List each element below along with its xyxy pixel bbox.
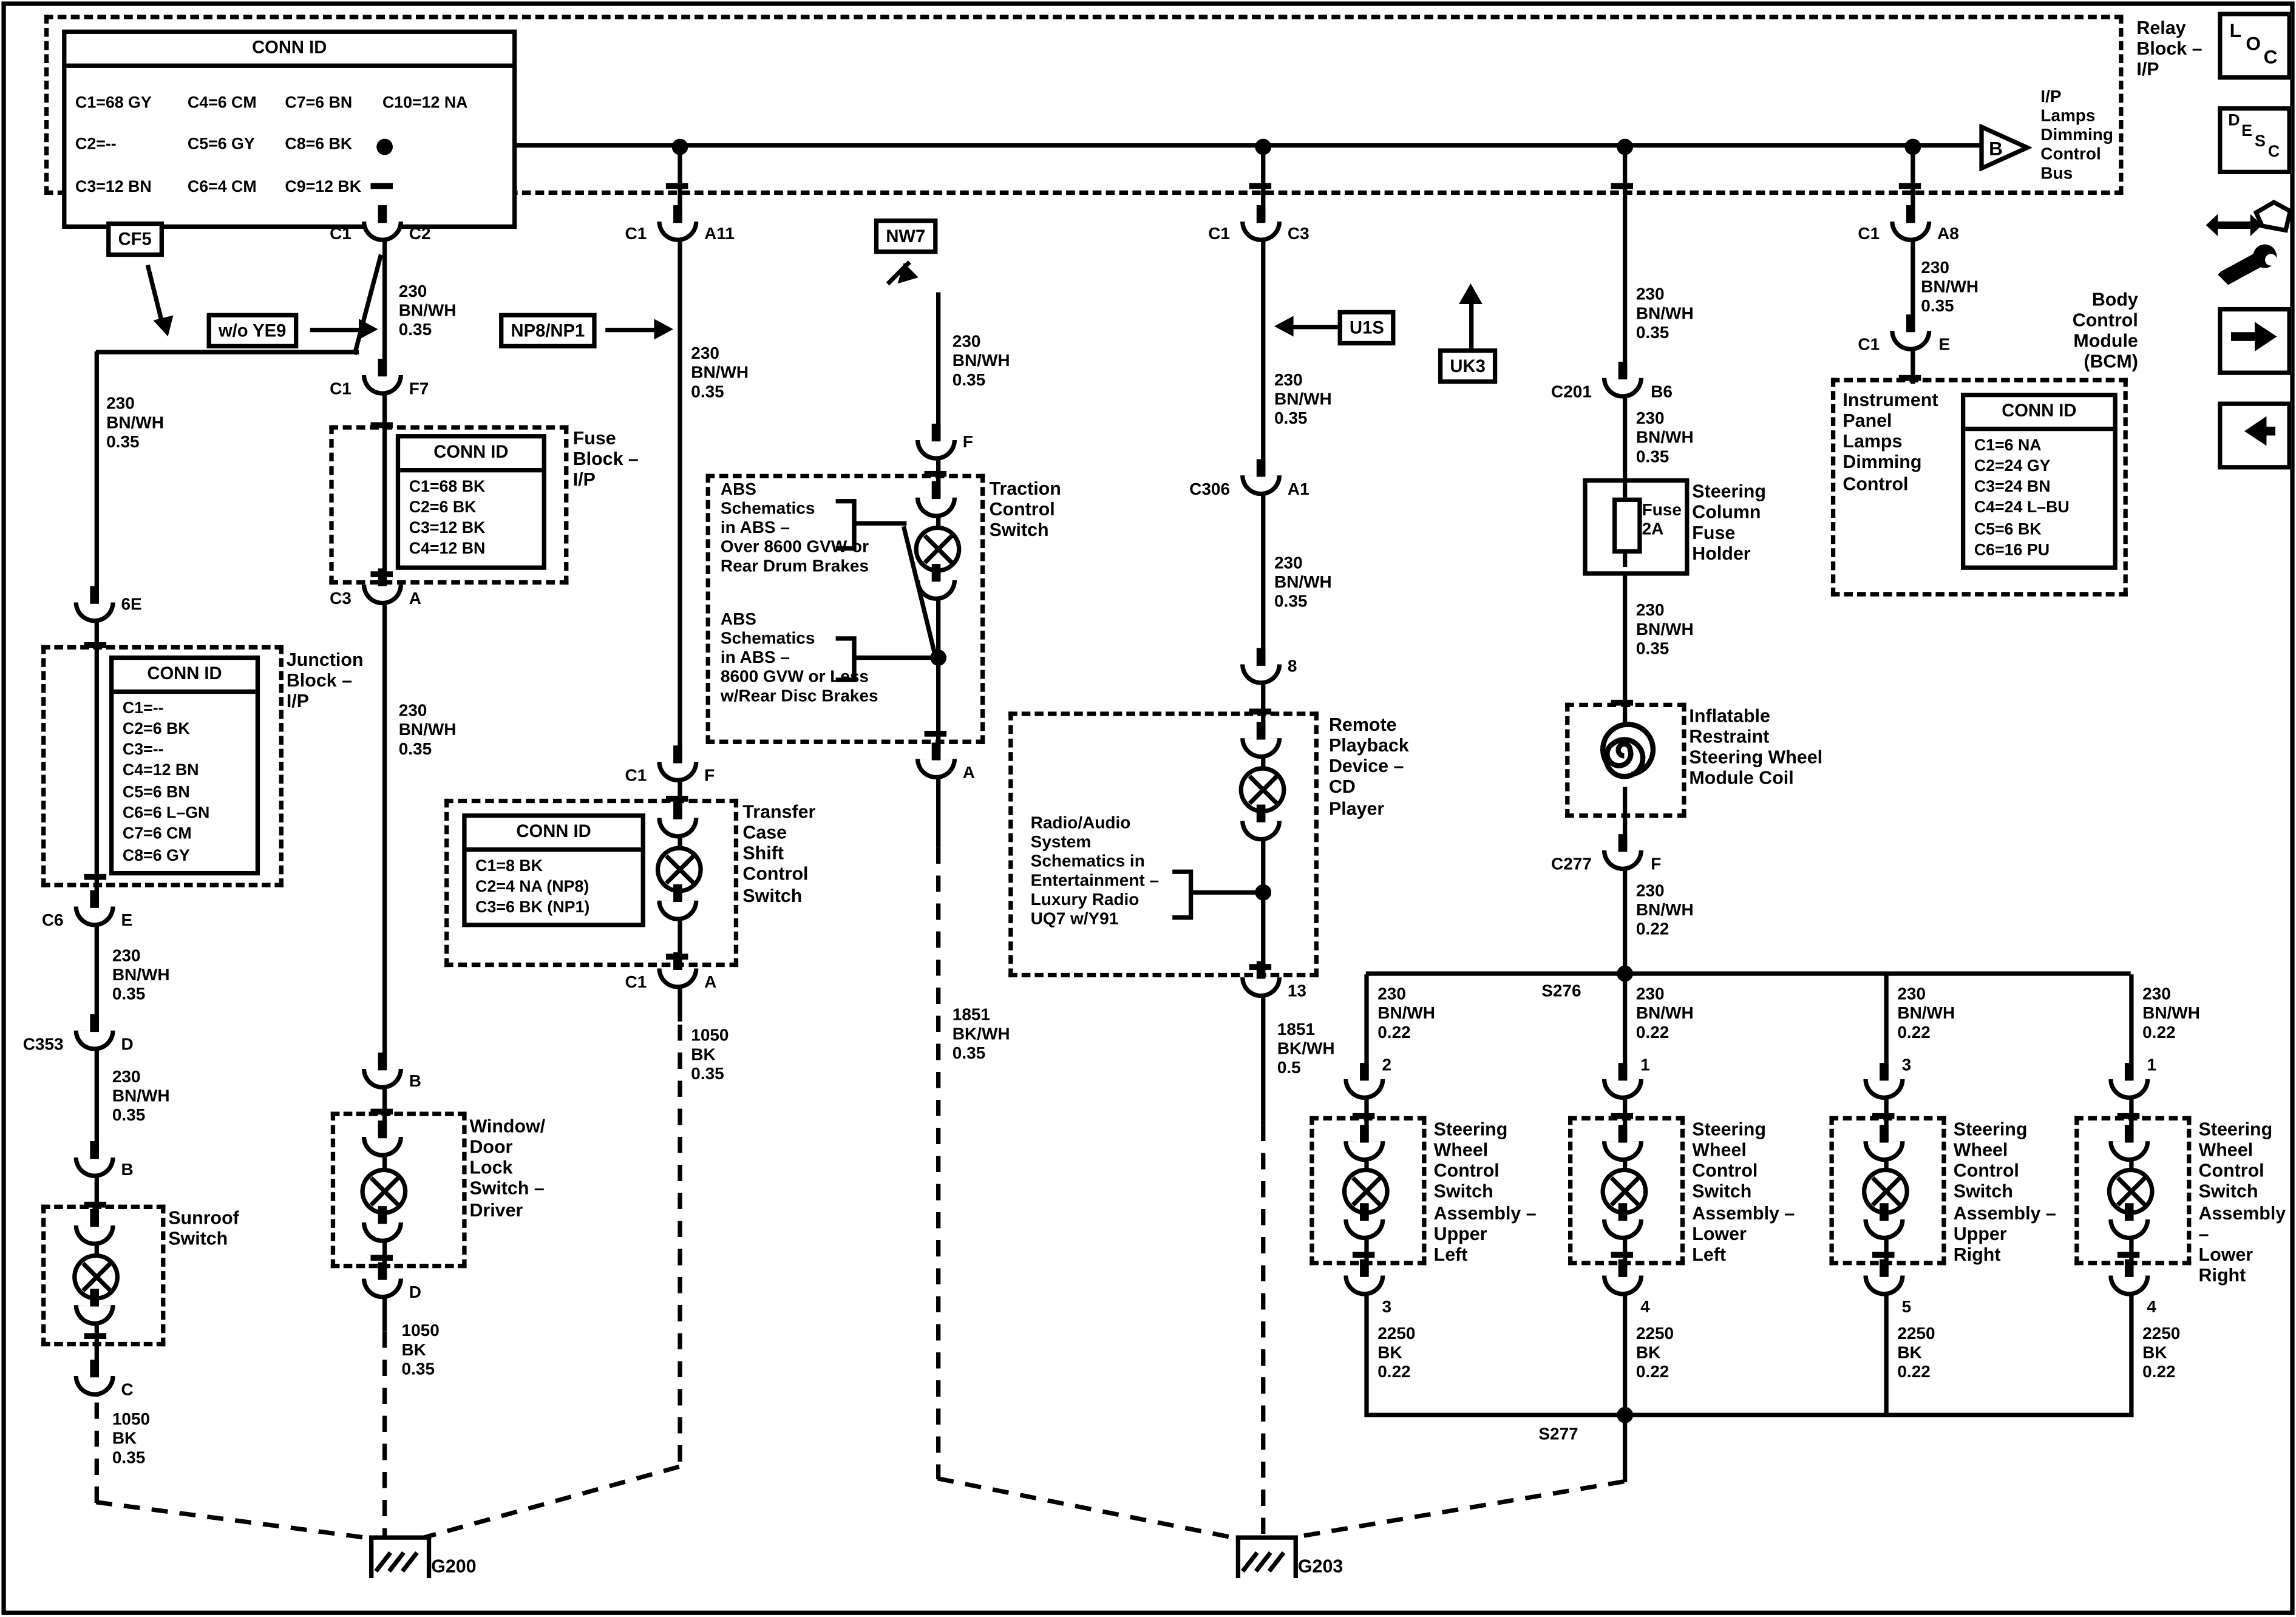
wire-label: 230 BN/WH 0.22 — [1636, 986, 1694, 1044]
connector — [1343, 1079, 1385, 1100]
conn-id-cell: C3=12 BN — [75, 177, 188, 198]
wire-dashed — [382, 1332, 386, 1539]
box-entry-tick — [84, 874, 106, 880]
pin-label: 4 — [2147, 1299, 2156, 1318]
pin-label: E — [121, 912, 132, 932]
wire-label: 2250 BK 0.22 — [2142, 1326, 2180, 1383]
arrowhead-icon — [153, 316, 180, 349]
connector — [1343, 1275, 1385, 1296]
arrowhead-icon — [1459, 272, 1483, 305]
pin-label: C1 — [1174, 226, 1230, 245]
bracket-link — [1190, 890, 1262, 895]
pin-label: 6E — [121, 597, 141, 616]
pin-label: C — [121, 1382, 133, 1402]
conn-id-cell: C10=12 NA — [382, 93, 468, 114]
pin-label: F7 — [409, 381, 429, 401]
loc-icon[interactable]: L O C — [2218, 12, 2292, 80]
relay-block-conn-id-table: CONN ID C1=68 GYC4=6 CMC7=6 BNC10=12 NA … — [62, 30, 517, 229]
table-title: CONN ID — [400, 438, 542, 472]
transfer-case-conn-id-table: CONN ID C1=8 BK C2=4 NA (NP8) C3=6 BK (N… — [462, 813, 645, 927]
ground-g203-label: G203 — [1298, 1556, 1343, 1577]
clockspring-coil-icon — [1590, 719, 1658, 793]
box-entry-tick — [1353, 1113, 1374, 1119]
sunroof-switch-label: Sunroof Switch — [168, 1208, 239, 1250]
pin-label: E — [1938, 337, 1950, 356]
connector-b-window — [362, 1069, 403, 1090]
sw-ll-label: Steering Wheel Control Switch Assembly –… — [1692, 1119, 1795, 1265]
box-entry-tick — [370, 183, 392, 189]
sw-lr-label: Steering Wheel Control Switch Assembly –… — [2199, 1119, 2296, 1286]
arrow-shaft — [605, 328, 659, 332]
wire-label: 2250 BK 0.22 — [1636, 1326, 1674, 1383]
tag-np8-np1: NP8/NP1 — [499, 313, 597, 348]
loc-letter: O — [2246, 33, 2261, 55]
wire-label: 230 BN/WH 0.35 — [399, 283, 457, 341]
fuse-block-label: Fuse Block – I/P — [573, 428, 639, 490]
wire-label: 230 BN/WH 0.22 — [1897, 986, 1955, 1044]
pin-label: 8 — [1288, 659, 1297, 678]
desc-letter: C — [2268, 143, 2280, 161]
radio-note: Radio/Audio System Schematics in Enterta… — [1031, 815, 1159, 930]
wire-label: 230 BN/WH 0.35 — [1636, 286, 1694, 344]
pin-label: C277 — [1521, 856, 1592, 876]
box-entry-tick — [1872, 1252, 1894, 1258]
pin-label: C1 — [591, 226, 647, 245]
sw-ul-label: Steering Wheel Control Switch Assembly –… — [1434, 1119, 1537, 1265]
pin-label: B — [409, 1073, 421, 1093]
splice-s276 — [1616, 966, 1632, 982]
connector-b-sunroof — [74, 1158, 115, 1178]
cf5-branch-wire — [96, 350, 359, 354]
box-entry-tick — [370, 1109, 392, 1115]
connector-c353-d — [74, 1031, 115, 1051]
traction-control-label: Traction Control Switch — [990, 478, 1061, 541]
junction-block-label: Junction Block – I/P — [287, 649, 364, 712]
arrowhead-icon — [359, 319, 389, 339]
bus-label: I/P Lamps Dimming Control Bus — [2040, 89, 2113, 185]
box-entry-tick — [2118, 1252, 2139, 1258]
wire-dashed — [93, 1403, 98, 1506]
conn-id-cell: C6=4 CM — [188, 177, 285, 198]
splice-label: S276 — [1541, 983, 1581, 1003]
box-entry-tick — [370, 422, 392, 429]
ground-g200-label: G200 — [431, 1556, 476, 1577]
wire-label: 1851 BK/WH 0.5 — [1277, 1022, 1335, 1079]
transfer-case-label: Transfer Case Shift Control Switch — [742, 802, 815, 906]
srs-coil-label: Inflatable Restraint Steering Wheel Modu… — [1689, 706, 1822, 789]
wire-label: 2250 BK 0.22 — [1377, 1326, 1415, 1383]
table-title: CONN ID — [66, 34, 512, 67]
ground-g200-icon — [369, 1535, 431, 1578]
wire-label: 2250 BK 0.22 — [1897, 1326, 1935, 1383]
bus-direction-triangle: B — [1978, 124, 2032, 171]
vehicle-wrench-icon[interactable] — [2206, 198, 2295, 293]
box-entry-tick — [1872, 1113, 1894, 1119]
pin-label: C1 — [295, 226, 351, 245]
bracket — [836, 677, 854, 682]
pin-label: C306 — [1166, 481, 1230, 501]
pin-label: D — [121, 1036, 133, 1056]
pin-label: D — [409, 1284, 421, 1304]
table-title: CONN ID — [114, 660, 255, 693]
connector-c1-c2 — [362, 222, 403, 242]
connector-6e — [74, 602, 115, 623]
conn-id-cell: C4=6 CM — [188, 93, 285, 114]
arrowhead-icon — [654, 319, 684, 339]
pin-label: A11 — [704, 226, 735, 245]
wire-dashed — [937, 1476, 1249, 1543]
loc-letter: L — [2230, 19, 2241, 41]
connector-c6-e — [74, 906, 115, 927]
conn-id-body: C1=-- C2=6 BK C3=-- C4=12 BN C5=6 BN C6=… — [114, 693, 255, 871]
pin-label: C1 — [295, 381, 351, 401]
box-entry-tick — [2118, 1113, 2139, 1119]
wire-label: 230 BN/WH 0.35 — [112, 1069, 170, 1127]
connector-c1-a11 — [657, 222, 698, 242]
wire-dashed — [936, 847, 940, 1479]
wire-label: 230 BN/WH 0.35 — [112, 947, 170, 1005]
fuse-block-conn-id-table: CONN ID C1=68 BK C2=6 BK C3=12 BK C4=12 … — [396, 434, 546, 569]
conn-id-cell: C5=6 GY — [188, 135, 285, 157]
table-title: CONN ID — [1965, 397, 2113, 430]
box-entry-tick — [1611, 183, 1633, 189]
pin-label: A — [963, 765, 975, 784]
bracket — [836, 546, 854, 551]
bcm-inner-label: Instrument Panel Lamps Dimming Control — [1843, 390, 1938, 494]
abs-note-1: ABS Schematics in ABS – Over 8600 GVW or… — [721, 481, 869, 577]
box-entry-tick — [84, 1333, 106, 1339]
ground-g203-icon — [1236, 1535, 1298, 1578]
box-entry-tick — [1611, 1252, 1633, 1258]
wire-label: 230 BN/WH 0.22 — [2142, 986, 2200, 1044]
desc-letter: S — [2255, 133, 2266, 151]
connector-c1-a-transfer — [657, 969, 698, 989]
wire-label: 230 BN/WH 0.35 — [691, 345, 749, 403]
pin-label: C1 — [591, 974, 647, 994]
conn-id-body: C1=8 BK C2=4 NA (NP8) C3=6 BK (NP1) — [467, 851, 641, 923]
connector-c1-f7 — [362, 375, 403, 396]
box-entry-tick — [1611, 1113, 1633, 1119]
wire-label: 1050 BK 0.35 — [402, 1323, 440, 1380]
box-entry-tick — [666, 183, 688, 189]
box-entry-tick — [84, 642, 106, 648]
wire — [352, 254, 383, 355]
desc-letter: E — [2241, 123, 2252, 140]
pin-label: B6 — [1651, 384, 1673, 403]
box-entry-tick — [1249, 708, 1271, 714]
connector-a-traction — [915, 759, 957, 779]
fuse-holder-label: Steering Column Fuse Holder — [1692, 481, 1766, 564]
box-entry-tick — [1611, 700, 1633, 706]
connector — [2108, 1079, 2150, 1100]
box-entry-tick — [370, 1255, 392, 1261]
desc-icon[interactable]: D E S C — [2218, 106, 2292, 174]
pin-label: 3 — [1902, 1057, 1912, 1076]
pin-label: A8 — [1937, 226, 1959, 245]
remote-playback-label: Remote Playback Device – CD Player — [1329, 714, 1409, 819]
connector — [1863, 1275, 1904, 1296]
wire-dashed — [1274, 1479, 1625, 1543]
pin-label: A1 — [1288, 481, 1309, 501]
tag-uk3: UK3 — [1438, 348, 1497, 384]
window-switch-label: Window/ Door Lock Switch – Driver — [469, 1116, 545, 1221]
connector-f-traction — [915, 440, 957, 461]
wire-label: 1851 BK/WH 0.35 — [953, 1007, 1010, 1065]
pin-label: C3 — [295, 591, 351, 610]
connector-c3-a — [362, 585, 403, 605]
pin-label: F — [704, 768, 715, 787]
connector-8 — [1240, 664, 1282, 685]
wire-label: 230 BN/WH 0.35 — [953, 334, 1010, 392]
pin-label: C201 — [1521, 384, 1592, 403]
box-entry-tick — [666, 796, 688, 802]
tag-nw7: NW7 — [874, 219, 937, 254]
relay-block-label: Relay Block – I/P — [2136, 18, 2202, 80]
conn-id-cell: C1=68 GY — [75, 93, 188, 114]
wire-label: 230 BN/WH 0.35 — [1274, 555, 1332, 613]
pin-label: 1 — [1640, 1057, 1650, 1076]
pin-label: 3 — [1382, 1299, 1392, 1318]
box-entry-tick — [84, 1202, 106, 1208]
arrowhead-icon — [883, 263, 918, 298]
wire-label: 1050 BK 0.35 — [691, 1028, 729, 1085]
pin-label: C1 — [1824, 226, 1880, 245]
pin-label: 1 — [2147, 1057, 2156, 1076]
bcm-label: Body Control Module (BCM) — [1996, 290, 2138, 373]
pin-label: A — [704, 974, 716, 994]
connector — [1863, 1079, 1904, 1100]
tag-cf5: CF5 — [106, 222, 163, 257]
pin-label: 2 — [1382, 1057, 1392, 1076]
forward-arrow-icon[interactable] — [2218, 307, 2292, 375]
splice-s277 — [1616, 1407, 1632, 1423]
box-entry-tick — [925, 471, 946, 477]
bracket — [836, 636, 854, 640]
splice-label: S277 — [1538, 1426, 1578, 1446]
fuse-2a-icon — [1612, 498, 1642, 554]
box-entry-tick — [1899, 375, 1921, 381]
wire-label: 230 BN/WH 0.35 — [1921, 260, 1978, 317]
wire-label: 230 BN/WH 0.22 — [1636, 883, 1694, 940]
triangle-letter: B — [1989, 137, 2003, 159]
sw-ur-label: Steering Wheel Control Switch Assembly –… — [1954, 1119, 2056, 1265]
pin-label: F — [963, 434, 973, 453]
wire-dashed — [1260, 1125, 1265, 1538]
connector-c1-e-bcm — [1890, 331, 1931, 351]
pin-label: 13 — [1288, 983, 1306, 1003]
wire-label: 230 BN/WH 0.35 — [1636, 410, 1694, 468]
bcm-conn-id-table: CONN ID C1=6 NA C2=24 GY C3=24 BN C4=24 … — [1961, 393, 2118, 571]
conn-id-cell: C9=12 BK — [285, 177, 382, 198]
pin-label: 4 — [1640, 1299, 1650, 1318]
wire-dashed — [677, 1025, 681, 1468]
tag-wo-ye9: w/o YE9 — [207, 313, 298, 348]
wiring-diagram-canvas: CONN ID C1=68 GYC4=6 CMC7=6 BNC10=12 NA … — [0, 0, 2296, 1616]
conn-id-cell: C2=-- — [75, 135, 188, 157]
desc-letter: D — [2228, 112, 2240, 130]
conn-id-body: C1=68 BK C2=6 BK C3=12 BK C4=12 BN — [400, 472, 542, 565]
pin-label: B — [121, 1162, 133, 1181]
box-entry-tick — [925, 731, 946, 737]
bracket — [1172, 870, 1190, 874]
conn-id-cell: C8=6 BK — [285, 135, 382, 157]
wire-dashed — [413, 1465, 680, 1543]
pin-label: C353 — [0, 1036, 64, 1056]
connector-c277-f — [1602, 850, 1643, 871]
wire-label: 1050 BK 0.35 — [112, 1411, 150, 1469]
pin-label: F — [1651, 856, 1661, 876]
connector-d-window — [362, 1278, 403, 1299]
wire-dashed — [96, 1500, 388, 1542]
connector-c306-a1 — [1240, 475, 1282, 496]
pin-label: C6 — [12, 912, 63, 932]
table-title: CONN ID — [467, 818, 641, 851]
wire-label: 230 BN/WH 0.35 — [1636, 602, 1694, 660]
pin-label: C3 — [1288, 226, 1309, 245]
connector-13 — [1240, 977, 1282, 998]
s277-bus-wire — [1366, 1413, 2131, 1417]
pin-label: C1 — [1824, 337, 1880, 356]
wire-label: 230 BN/WH 0.35 — [399, 703, 457, 761]
pin-label: C2 — [409, 226, 431, 245]
connector-c-sunroof — [74, 1376, 115, 1397]
arrowhead-icon — [1264, 316, 1294, 336]
pin-label: A — [409, 591, 421, 610]
pin-label: 5 — [1902, 1299, 1912, 1318]
junction-block-conn-id-table: CONN ID C1=-- C2=6 BK C3=-- C4=12 BN C5=… — [109, 656, 260, 875]
wire-label: 230 BN/WH 0.35 — [1274, 372, 1332, 430]
box-entry-tick — [1353, 1252, 1374, 1258]
connector-c1-f-transfer — [657, 762, 698, 782]
wire-label: 230 BN/WH 0.22 — [1377, 986, 1435, 1044]
arrow-shaft — [310, 328, 364, 332]
s276-bus-wire — [1366, 971, 2131, 975]
conn-id-cell: C7=6 BN — [285, 93, 382, 114]
back-arrow-icon[interactable] — [2218, 402, 2292, 470]
wire-label: 230 BN/WH 0.35 — [106, 396, 164, 453]
bracket-link — [854, 656, 939, 660]
connector — [1602, 1079, 1643, 1100]
bracket-link — [854, 521, 907, 526]
connector — [2108, 1275, 2150, 1296]
pin-label: C1 — [591, 768, 647, 787]
bracket — [836, 499, 854, 503]
loc-letter: C — [2264, 46, 2278, 67]
box-entry-tick — [1899, 183, 1921, 189]
box-entry-tick — [1249, 183, 1271, 189]
connector-c201-b6 — [1602, 378, 1643, 399]
fuse-2a-label: Fuse 2A — [1642, 502, 1682, 540]
connector-c1-a8 — [1890, 222, 1931, 242]
connector — [1602, 1275, 1643, 1296]
bracket — [1172, 915, 1190, 920]
connector-c1-c3 — [1240, 222, 1282, 242]
tag-u1s: U1S — [1338, 310, 1396, 345]
conn-id-body: C1=6 NA C2=24 GY C3=24 BN C4=24 L–BU C5=… — [1965, 430, 2113, 566]
